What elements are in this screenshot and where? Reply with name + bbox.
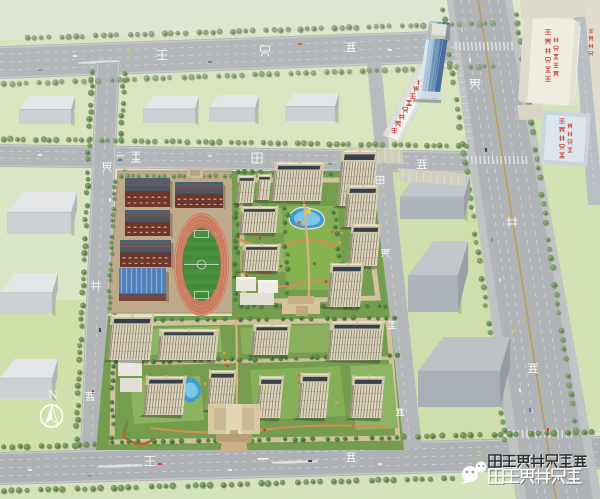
svg-text:N: N xyxy=(48,387,58,402)
